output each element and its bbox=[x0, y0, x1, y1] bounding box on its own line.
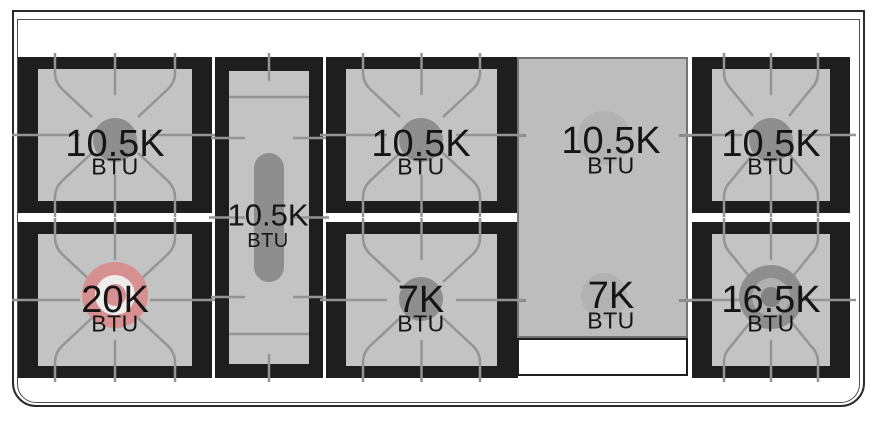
btu-unit-label: BTU bbox=[747, 313, 795, 336]
btu-unit-label: BTU bbox=[397, 313, 445, 336]
btu-unit-label: BTU bbox=[91, 156, 139, 179]
range-cooktop-diagram: 10.5K BTU 10.5K BTU 10.5K BTU 10.5K BTU … bbox=[0, 0, 872, 424]
btu-unit-label: BTU bbox=[747, 156, 795, 179]
btu-unit-label: BTU bbox=[91, 313, 139, 336]
btu-unit-label: BTU bbox=[587, 155, 635, 178]
btu-unit-label: BTU bbox=[587, 310, 635, 333]
btu-unit-label: BTU bbox=[247, 231, 289, 251]
btu-unit-label: BTU bbox=[397, 156, 445, 179]
burner-rating-label: 10.5K bbox=[227, 200, 308, 231]
griddle-grease-trough bbox=[517, 338, 688, 376]
